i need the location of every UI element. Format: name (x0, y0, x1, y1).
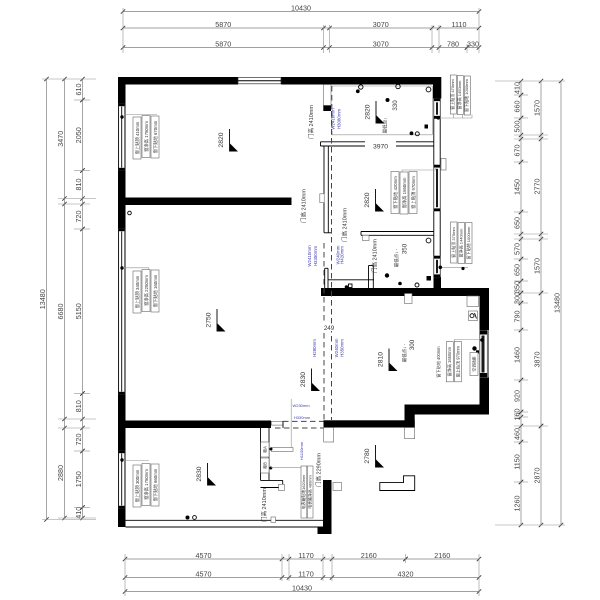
svg-text:410: 410 (74, 507, 83, 519)
svg-text:1170: 1170 (298, 551, 313, 560)
svg-text:10430: 10430 (291, 4, 311, 13)
svg-text:650: 650 (512, 264, 521, 276)
svg-text:柜B: 柜B (262, 462, 268, 469)
svg-text:窗净高 1450mm: 窗净高 1450mm (456, 80, 462, 109)
svg-text:650: 650 (512, 217, 521, 229)
svg-text:1570: 1570 (532, 100, 541, 116)
svg-text:4320: 4320 (398, 570, 414, 579)
svg-text:2820: 2820 (365, 104, 372, 119)
svg-text:窗上贴顶 470mm: 窗上贴顶 470mm (449, 79, 455, 110)
svg-text:810: 810 (74, 179, 83, 191)
svg-text:窗上贴顶 970mm: 窗上贴顶 970mm (410, 176, 417, 209)
svg-text:窗净高 1440mm: 窗净高 1440mm (457, 228, 463, 257)
svg-text:2780: 2780 (364, 448, 371, 463)
svg-text:窗净高 1750mm: 窗净高 1750mm (143, 121, 150, 152)
svg-text:H350mm: H350mm (339, 339, 344, 357)
svg-text:1110: 1110 (452, 20, 467, 29)
svg-text:窗上贴顶 410mm: 窗上贴顶 410mm (134, 121, 141, 154)
svg-text:W2410mm: W2410mm (307, 245, 312, 267)
svg-text:6680: 6680 (56, 304, 65, 320)
svg-text:H330mm: H330mm (294, 415, 311, 420)
svg-text:1450: 1450 (512, 179, 521, 195)
svg-text:3470: 3470 (56, 131, 65, 147)
svg-text:最低点↓: 最低点↓ (382, 118, 389, 134)
svg-text:2820: 2820 (218, 132, 225, 147)
svg-text:330: 330 (467, 40, 479, 49)
svg-text:1260: 1260 (512, 496, 521, 512)
svg-text:4570: 4570 (196, 551, 212, 560)
svg-text:窗上贴顶 300mm: 窗上贴顶 300mm (134, 469, 141, 502)
svg-text:5870: 5870 (215, 40, 231, 49)
svg-text:2830: 2830 (196, 466, 203, 481)
svg-text:570: 570 (512, 243, 521, 255)
svg-text:300: 300 (409, 339, 416, 350)
svg-text:最低点↓ -: 最低点↓ - (393, 248, 400, 267)
svg-text:窗下贴地 400mm: 窗下贴地 400mm (435, 346, 441, 378)
svg-text:窗上贴顶 340mm: 窗上贴顶 340mm (134, 275, 141, 308)
svg-text:窗上贴顶 970mm: 窗上贴顶 970mm (454, 346, 460, 378)
svg-text:500: 500 (512, 121, 521, 133)
svg-text:350: 350 (402, 243, 409, 254)
svg-text:窗下贴地 1000mm: 窗下贴地 1000mm (463, 79, 469, 112)
svg-text:2820: 2820 (364, 192, 371, 207)
svg-text:2870: 2870 (532, 468, 541, 484)
svg-text:249: 249 (324, 325, 335, 332)
svg-text:3070: 3070 (373, 20, 389, 29)
svg-text:3870: 3870 (532, 352, 541, 368)
svg-text:3070: 3070 (373, 40, 389, 49)
svg-text:10430: 10430 (292, 584, 312, 593)
svg-text:2050: 2050 (74, 127, 83, 143)
svg-text:2830: 2830 (300, 372, 307, 387)
svg-text:W230mm: W230mm (292, 403, 310, 408)
svg-text:610: 610 (74, 84, 83, 96)
svg-text:电表箱贴地1620mm: 电表箱贴地1620mm (301, 475, 306, 510)
svg-text:窗上贴顶 370mm: 窗上贴顶 370mm (450, 227, 456, 258)
svg-text:柜A: 柜A (262, 446, 268, 453)
svg-text:1460: 1460 (512, 347, 521, 363)
svg-text:窗净高 1750mm: 窗净高 1750mm (143, 469, 150, 500)
svg-text:2810: 2810 (378, 352, 385, 367)
svg-text:最低点↓ -: 最低点↓ - (401, 343, 408, 362)
svg-text:窗下贴地 420mm: 窗下贴地 420mm (392, 176, 399, 209)
svg-text:780: 780 (447, 40, 459, 49)
svg-text:1150: 1150 (512, 454, 521, 469)
svg-text:窗净高 1650mm: 窗净高 1650mm (401, 177, 408, 208)
svg-text:3970: 3970 (373, 144, 388, 151)
svg-text:H3350mm: H3350mm (313, 246, 318, 267)
svg-text:13480: 13480 (552, 293, 561, 313)
svg-text:5870: 5870 (215, 20, 231, 29)
svg-text:920: 920 (512, 390, 521, 402)
svg-text:1570: 1570 (532, 258, 541, 274)
svg-text:窗下贴地 660mm: 窗下贴地 660mm (152, 468, 159, 501)
svg-text:W2410mm: W2410mm (331, 108, 336, 130)
svg-text:720: 720 (74, 211, 83, 223)
svg-text:1170: 1170 (298, 570, 313, 579)
svg-text:460: 460 (512, 428, 521, 440)
svg-text:330: 330 (392, 100, 399, 111)
svg-text:窗净高 1650mm: 窗净高 1650mm (446, 346, 452, 376)
svg-text:窗净高 2250mm: 窗净高 2250mm (143, 275, 150, 306)
svg-text:4570: 4570 (196, 570, 212, 579)
svg-text:H280mm: H280mm (312, 339, 317, 357)
svg-text:电表箱净高 480mm: 电表箱净高 480mm (307, 475, 312, 509)
svg-text:660: 660 (512, 101, 521, 113)
svg-text:2880: 2880 (56, 465, 65, 481)
svg-text:13480: 13480 (38, 289, 47, 309)
svg-text:2770: 2770 (532, 179, 541, 195)
svg-text:窗下贴地 670mm: 窗下贴地 670mm (152, 120, 159, 153)
svg-text:720: 720 (74, 434, 83, 446)
svg-text:5150: 5150 (74, 303, 83, 319)
svg-text:810: 810 (74, 400, 83, 412)
svg-text:2750: 2750 (206, 312, 213, 327)
svg-text:W240mm: W240mm (334, 338, 339, 357)
svg-text:300: 300 (512, 292, 521, 304)
svg-text:790: 790 (512, 311, 521, 323)
svg-text:H1100mm: H1100mm (299, 441, 304, 460)
svg-text:H420mm: H420mm (340, 246, 345, 264)
svg-text:350: 350 (512, 281, 521, 293)
svg-text:1750: 1750 (74, 471, 83, 487)
svg-text:160: 160 (512, 409, 521, 421)
svg-text:410: 410 (512, 82, 521, 94)
svg-text:空调插座: 空调插座 (472, 356, 477, 371)
svg-text:670: 670 (512, 145, 521, 157)
svg-text:窗下贴地 1000mm: 窗下贴地 1000mm (465, 226, 471, 259)
svg-text:2160: 2160 (361, 551, 377, 560)
svg-text:窗下贴地 160mm: 窗下贴地 160mm (152, 274, 159, 307)
svg-text:2160: 2160 (434, 551, 450, 560)
svg-text:H3080mm: H3080mm (337, 109, 342, 130)
